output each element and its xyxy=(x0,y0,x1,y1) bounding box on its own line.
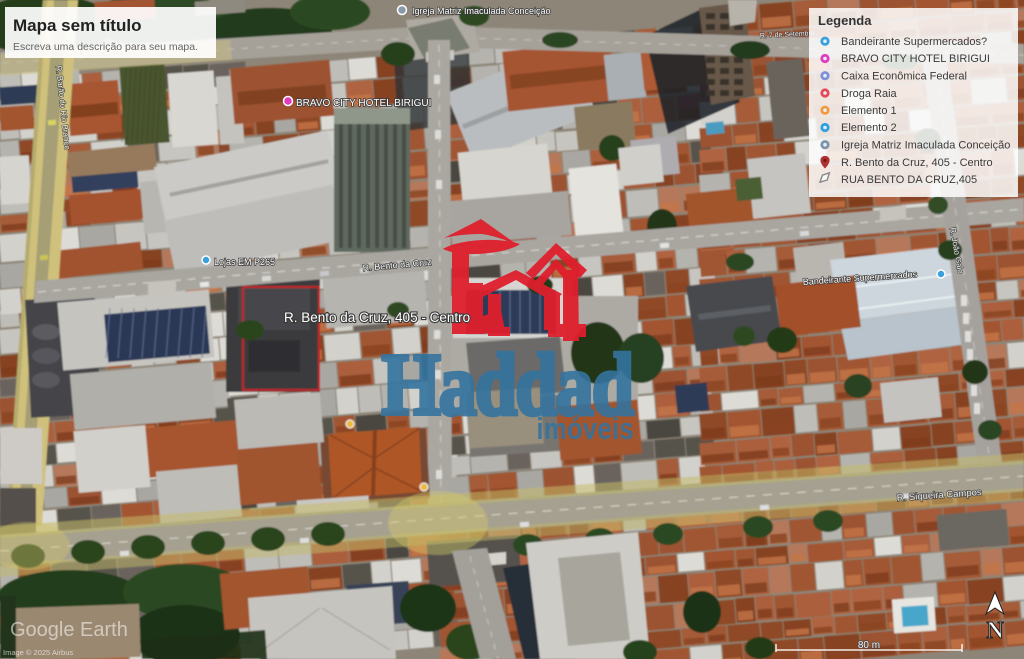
svg-text:Igreja Matriz Imaculada Concei: Igreja Matriz Imaculada Conceição xyxy=(412,6,551,16)
svg-text:R. Bento da Cruz, 405 - Centro: R. Bento da Cruz, 405 - Centro xyxy=(284,310,470,325)
svg-text:R. Bento da Cruz, 405 - Centro: R. Bento da Cruz, 405 - Centro xyxy=(841,157,993,169)
svg-text:imóveis: imóveis xyxy=(537,412,634,447)
svg-text:Mapa sem título: Mapa sem título xyxy=(13,16,141,35)
svg-text:Google Earth: Google Earth xyxy=(10,619,128,641)
svg-text:BRAVO CITY HOTEL BIRIGUI: BRAVO CITY HOTEL BIRIGUI xyxy=(296,98,431,109)
svg-text:Elemento 2: Elemento 2 xyxy=(841,122,897,134)
svg-text:BRAVO CITY HOTEL BIRIGUI: BRAVO CITY HOTEL BIRIGUI xyxy=(841,53,990,65)
svg-text:RUA BENTO DA CRUZ,405: RUA BENTO DA CRUZ,405 xyxy=(841,174,977,186)
svg-text:N: N xyxy=(986,618,1004,644)
svg-text:Escreva uma descrição para seu: Escreva uma descrição para seu mapa. xyxy=(13,41,198,53)
svg-text:80 m: 80 m xyxy=(858,640,880,651)
svg-text:Caixa Econômica Federal: Caixa Econômica Federal xyxy=(841,71,967,83)
svg-text:Lojas EM P265: Lojas EM P265 xyxy=(214,257,275,267)
svg-text:Igreja Matriz Imaculada Concei: Igreja Matriz Imaculada Conceição xyxy=(841,140,1010,152)
svg-text:Elemento 1: Elemento 1 xyxy=(841,105,897,117)
svg-text:Legenda: Legenda xyxy=(818,13,872,28)
svg-text:Bandeirante Supermercados?: Bandeirante Supermercados? xyxy=(841,36,987,48)
svg-text:Image © 2025 Airbus: Image © 2025 Airbus xyxy=(3,648,73,657)
svg-text:Droga Raia: Droga Raia xyxy=(841,88,898,100)
